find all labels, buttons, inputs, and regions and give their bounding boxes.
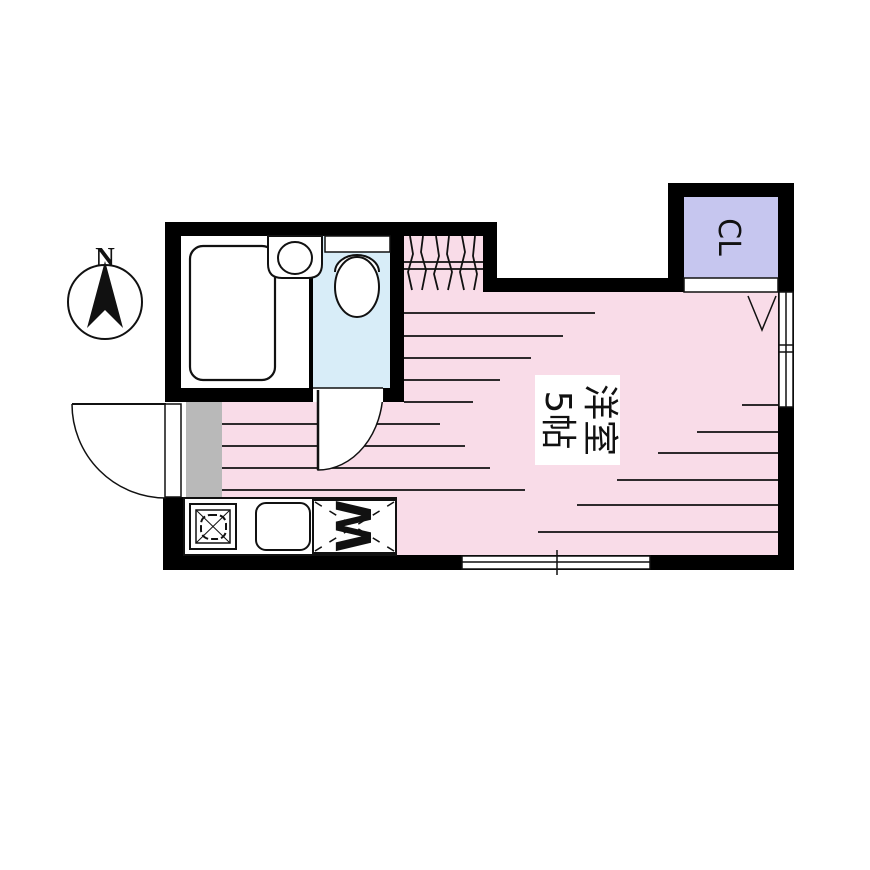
entry-floor [186, 402, 222, 497]
washer-label: W [327, 500, 383, 553]
entry-door-opening [165, 404, 181, 497]
toilet-door-opening [313, 388, 383, 402]
washbasin-bowl [278, 242, 312, 274]
wall-bathroom-mainroom [390, 222, 404, 402]
main-room-label-line1: 洋室 [579, 384, 620, 456]
toilet-bowl [335, 257, 379, 317]
wall-bathroom-bottom-stub [383, 388, 404, 402]
bathtub [190, 246, 275, 380]
wall-top-bathroom [165, 222, 497, 236]
wall-bathroom-bottom [165, 388, 313, 402]
entry-door-swing-arc [72, 404, 166, 498]
wall-closet-left [668, 183, 684, 292]
window-nook-floor [404, 236, 483, 292]
wall-left-lower [163, 497, 186, 570]
closet-door [684, 278, 778, 292]
floorplan-drawing: W 洋室 5帖 CL N [0, 0, 870, 870]
floorplan-page: W 洋室 5帖 CL N [0, 0, 870, 870]
wall-mid-horizontal [483, 278, 684, 292]
kitchen-sink [256, 503, 310, 550]
wall-left-upper [165, 222, 181, 402]
toilet-shelf [325, 236, 390, 252]
compass: N [68, 242, 142, 339]
wall-closet-top [668, 183, 794, 197]
closet-label: CL [711, 218, 746, 256]
compass-north-label: N [95, 242, 115, 272]
kitchen-fixtures: W [184, 498, 396, 555]
main-room-label-line2: 5帖 [537, 391, 578, 450]
